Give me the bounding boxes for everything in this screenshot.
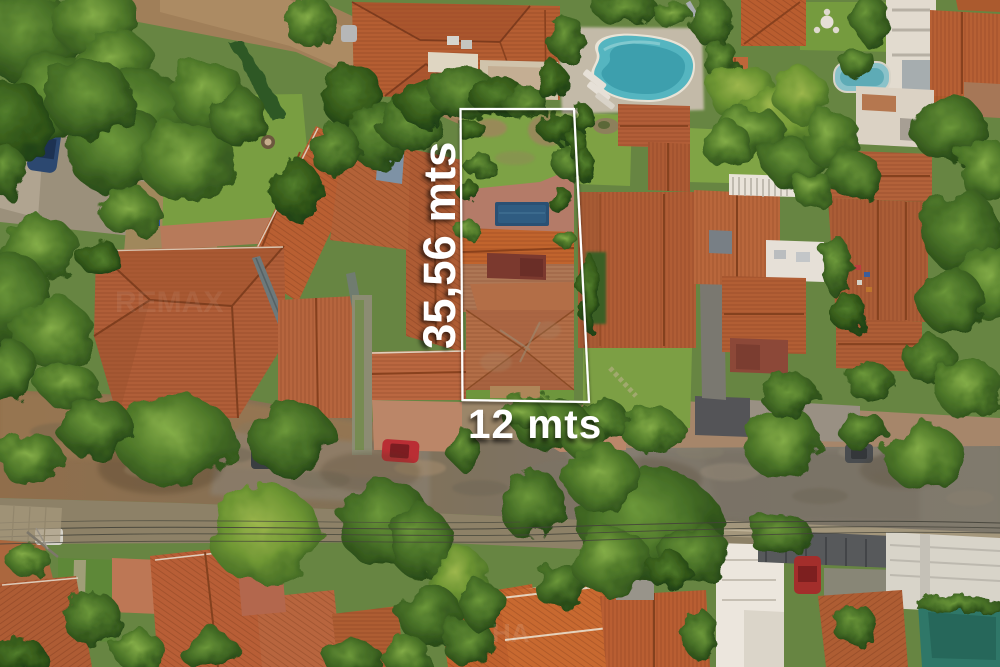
svg-text:35,56 mts: 35,56 mts	[414, 142, 465, 349]
svg-text:HA: HA	[492, 618, 530, 648]
svg-text:REMAX: REMAX	[115, 286, 223, 319]
svg-text:12 mts: 12 mts	[468, 401, 602, 447]
